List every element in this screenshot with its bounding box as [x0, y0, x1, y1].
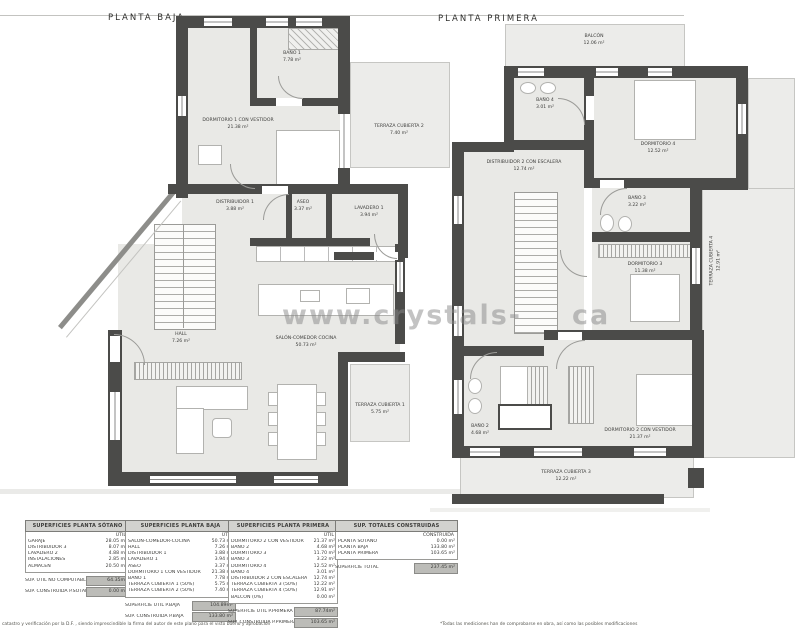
- wall: [452, 494, 664, 504]
- desk-dormitorio1: [198, 145, 222, 165]
- room-label-dormitorio2: DORMITORIO 2 CON VESTIDOR 21.37 m²: [585, 428, 695, 441]
- table-title: SUPERFICIES PLANTA BAJA: [125, 520, 236, 532]
- wall: [452, 346, 544, 356]
- wall: [334, 252, 374, 260]
- sink-banio3: [600, 214, 614, 232]
- wall: [688, 468, 704, 488]
- wall: [250, 238, 370, 246]
- room-label-dormitorio4: DORMITORIO 4 12.52 m²: [618, 142, 698, 155]
- window: [296, 18, 322, 26]
- window: [534, 448, 582, 456]
- row-label: SUPERFICIE ÚTIL P.PRIMERA: [228, 609, 293, 615]
- watermark-text: ca: [572, 300, 610, 331]
- room-label-banio2: BAÑO 2 4.68 m²: [462, 424, 498, 437]
- room-label-aseo: ASEO 3.37 m²: [283, 200, 323, 213]
- window: [204, 18, 232, 26]
- room-label-banio3: BAÑO 3 3.22 m²: [617, 196, 657, 209]
- window: [454, 196, 462, 224]
- stairs-divider: [183, 224, 184, 328]
- table-row: BALCÓN (0%)0.00 m²: [231, 595, 335, 601]
- table-totals: SUPERFICIE TOTAL237.45 m²: [335, 563, 458, 573]
- bed-dormitorio2: [636, 374, 696, 426]
- chair: [268, 432, 278, 446]
- bed-dormitorio4: [634, 80, 696, 140]
- room-label-hall: HALL 7.26 m²: [161, 332, 201, 345]
- row-label: SUP. CONSTRUIDA P.BAJA: [125, 614, 184, 620]
- window: [397, 262, 403, 292]
- toilet-banio3: [618, 216, 632, 232]
- watermark-text: www.crystals-: [282, 300, 522, 331]
- table-superficies-baja: SUPERFICIES PLANTA BAJA ÚTIL SALÓN-COMED…: [125, 520, 236, 622]
- door-opening: [586, 96, 594, 120]
- footer-disclaimer-left: catastro y verificación por la D.F. , si…: [2, 622, 270, 627]
- row-label: BALCÓN (0%): [231, 595, 263, 601]
- window: [596, 68, 618, 76]
- table-title: SUPERFICIES PLANTA SÓTANO: [25, 520, 130, 532]
- wall: [504, 66, 514, 150]
- toilet-banio2: [468, 398, 482, 414]
- room-label-distribuidor2: DISTRIBUIDOR 2 CON ESCALERA 12.74 m²: [469, 160, 579, 173]
- armchair: [212, 418, 232, 438]
- row-label: SUP. CONSTRUIDA P.SÓTANO: [25, 589, 86, 595]
- wall: [514, 140, 594, 150]
- chair: [316, 432, 326, 446]
- window: [340, 114, 348, 168]
- room-label-banio4: BAÑO 4 3.01 m²: [525, 98, 565, 111]
- window: [110, 392, 120, 440]
- row-value: 103.65 m²: [294, 618, 338, 628]
- row-value: 87.74m²: [294, 607, 338, 617]
- balcon-area: [505, 24, 685, 72]
- footer-disclaimer-right: *Todas las mediciones han de comprobarse…: [440, 622, 637, 627]
- row-value: 103.65 m²: [431, 551, 455, 557]
- row-value: 64.35m²: [86, 576, 130, 586]
- row-label: SUPERFICIE ÚTIL P.BAJA: [125, 603, 180, 609]
- wall: [338, 352, 405, 362]
- wall: [584, 66, 594, 188]
- row-value: 0.00 m²: [86, 587, 130, 597]
- chair: [316, 392, 326, 406]
- shower-hatch-banio1: [288, 28, 340, 50]
- table-title: SUP. TOTALES CONSTRUIDAS: [335, 520, 458, 532]
- row-label: SUP. ÚTIL NO COMPUTABLE: [25, 578, 86, 584]
- table-row: SUPERFICIE ÚTIL P.BAJA104.89m²: [125, 601, 236, 611]
- row-value: 0.00 m²: [317, 595, 335, 601]
- plan-title-baja: PLANTA BAJA: [108, 13, 185, 23]
- wall: [338, 362, 348, 474]
- row-value: 20.50 m²: [106, 564, 127, 570]
- wall: [250, 28, 257, 106]
- row-value: 237.45 m²: [414, 563, 458, 573]
- bed-dormitorio3: [630, 274, 680, 322]
- room-label-banio1: BAÑO 1 7.78 m²: [267, 51, 317, 64]
- wall: [168, 184, 408, 194]
- room-label-dormitorio3: DORMITORIO 3 11.38 m²: [610, 262, 680, 275]
- wardrobe-vestidor: [568, 366, 594, 424]
- shower-banio2: [498, 404, 552, 430]
- window: [470, 448, 500, 456]
- wall: [176, 16, 350, 28]
- door-opening: [276, 98, 302, 106]
- wall: [316, 472, 348, 486]
- window: [274, 476, 318, 483]
- stairs-baja: [154, 224, 216, 330]
- shelf-banio2: [500, 366, 528, 406]
- table-row: TERRAZA CUBIERTA 2 (50%)7.40 m²: [128, 588, 233, 594]
- window: [518, 68, 544, 76]
- wardrobe-dorm3: [598, 244, 692, 258]
- table-rows: GARAJE28.05 m²DISTRIBUIDOR 38.07 m²LAVAD…: [28, 539, 127, 570]
- table-row: PLANTA PRIMERA103.65 m²: [338, 551, 455, 557]
- room-label-terraza4: TERRAZA CUBIERTA 4 12.91 m²: [709, 216, 722, 306]
- room-label-terraza2: TERRAZA CUBIERTA 2 7.40 m²: [351, 124, 447, 137]
- row-label: TERRAZA CUBIERTA 2 (50%): [128, 588, 194, 594]
- window: [634, 448, 666, 456]
- table-rows: PLANTA SÓTANO0.00 m²PLANTA BAJA133.80 m²…: [338, 539, 455, 558]
- dining-table: [277, 384, 317, 460]
- row-label: SUPERFICIE TOTAL: [335, 565, 379, 571]
- table-row: SUP. CONSTRUIDA P.SÓTANO0.00 m²: [25, 587, 130, 597]
- room-label-distribuidor1: DISTRIBUIDOR 1 3.88 m²: [200, 200, 270, 213]
- table-row: SUP. CONSTRUIDA P.BAJA133.80 m²: [125, 612, 236, 622]
- sofa: [176, 386, 248, 410]
- room-label-dormitorio1: DORMITORIO 1 CON VESTIDOR 21.38 m²: [178, 118, 298, 131]
- table-row: SUPERFICIE ÚTIL P.PRIMERA87.74m²: [228, 607, 338, 617]
- chair: [316, 412, 326, 426]
- sink-banio4: [540, 82, 556, 94]
- plan-title-primera: PLANTA PRIMERA: [438, 14, 539, 24]
- ground-band-left: [0, 489, 460, 494]
- window: [454, 380, 462, 414]
- table-totals: SUP. ÚTIL NO COMPUTABLE64.35m²SUP. CONST…: [25, 576, 130, 597]
- table-superficies-primera: SUPERFICIES PLANTA PRIMERA ÚTIL DORMITOR…: [228, 520, 338, 628]
- window: [738, 104, 746, 134]
- tv-unit: [134, 362, 242, 380]
- table-title: SUPERFICIES PLANTA PRIMERA: [228, 520, 338, 532]
- terrace-cubierta2-area: [350, 62, 450, 168]
- room-label-terraza1: TERRAZA CUBIERTA 1 5.75 m²: [340, 403, 420, 416]
- window: [692, 248, 700, 284]
- room-label-terraza3: TERRAZA CUBIERTA 3 12.22 m²: [521, 470, 611, 483]
- row-label: PLANTA PRIMERA: [338, 551, 378, 557]
- window: [150, 476, 236, 483]
- table-superficies-sotano: SUPERFICIES PLANTA SÓTANO ÚTIL GARAJE28.…: [25, 520, 130, 597]
- room-label-salon: SALÓN-COMEDOR COCINA 50.73 m²: [251, 336, 361, 349]
- floorplan-sheet: PLANTA BAJA PLANTA PRIMERA: [0, 0, 800, 640]
- window: [648, 68, 672, 76]
- chair: [268, 392, 278, 406]
- table-rows: SALÓN-COMEDOR-COCINA50.73 m²HALL7.26 m²D…: [128, 539, 233, 595]
- table-row: ALMACÉN20.50 m²: [28, 564, 127, 570]
- window: [266, 18, 288, 26]
- bed-dormitorio1: [276, 130, 340, 186]
- table-row: SUP. ÚTIL NO COMPUTABLE64.35m²: [25, 576, 130, 586]
- row-label: ALMACÉN: [28, 564, 51, 570]
- sink-banio2: [468, 378, 482, 394]
- window: [178, 96, 186, 116]
- table-totales-construidas: SUP. TOTALES CONSTRUIDAS CONSTRUIDA PLAN…: [335, 520, 458, 574]
- wall: [592, 232, 692, 242]
- room-label-balcon: BALCÓN 12.06 m²: [564, 34, 624, 47]
- ground-band-right: [430, 508, 710, 512]
- chair: [268, 412, 278, 426]
- terrace-cubierta4-upper: [748, 78, 795, 190]
- table-totals: SUPERFICIE ÚTIL P.BAJA104.89m²SUP. CONST…: [125, 601, 236, 622]
- door-opening: [558, 332, 582, 340]
- table-rows: DORMITORIO 2 CON VESTIDOR21.37 m²BAÑO 24…: [231, 539, 335, 601]
- wall: [326, 194, 332, 244]
- sofa-chaise: [176, 408, 204, 454]
- door-opening: [600, 180, 624, 188]
- sink-banio4: [520, 82, 536, 94]
- table-row: SUPERFICIE TOTAL237.45 m²: [335, 563, 458, 573]
- door-opening: [262, 186, 288, 194]
- room-label-lavadero1: LAVADERO 1 3.94 m²: [339, 206, 399, 219]
